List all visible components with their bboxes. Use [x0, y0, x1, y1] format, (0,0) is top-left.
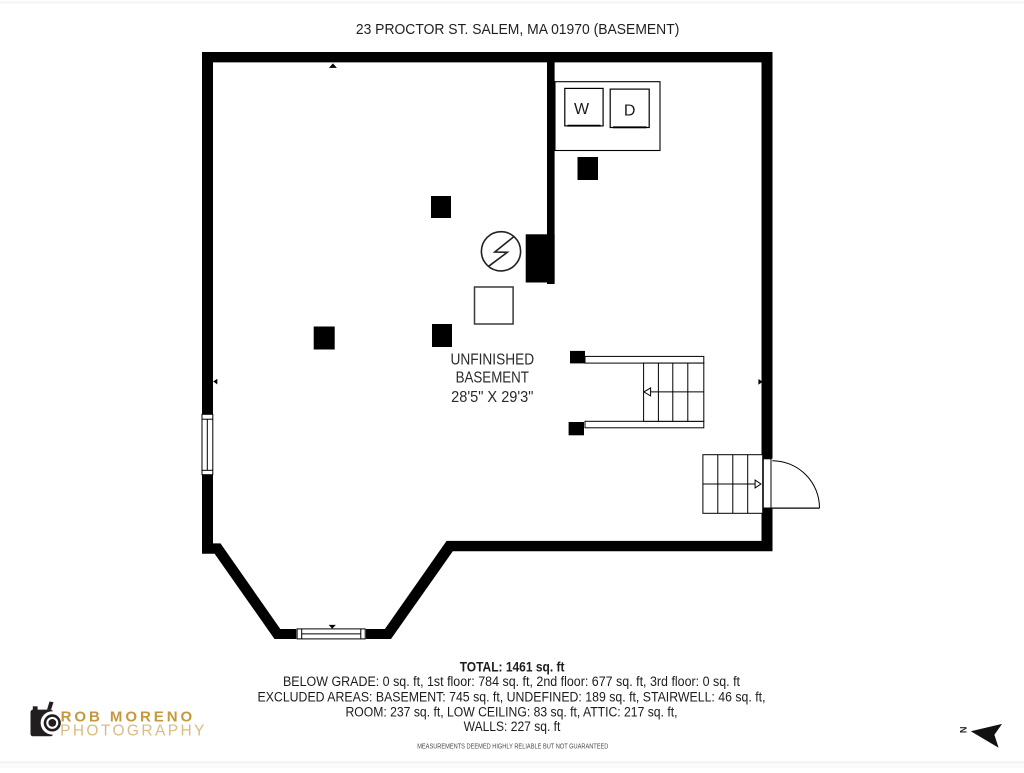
svg-text:WALLS: 227 sq. ft: WALLS: 227 sq. ft — [464, 719, 561, 734]
svg-text:PHOTOGRAPHY: PHOTOGRAPHY — [60, 723, 207, 740]
svg-text:UNFINISHED: UNFINISHED — [451, 351, 535, 368]
svg-text:N: N — [959, 726, 969, 733]
svg-text:TOTAL: 1461 sq. ft: TOTAL: 1461 sq. ft — [460, 659, 565, 674]
svg-text:BASEMENT: BASEMENT — [456, 370, 530, 387]
svg-text:23 PROCTOR ST. SALEM, MA 01970: 23 PROCTOR ST. SALEM, MA 01970 (BASEMENT… — [356, 22, 680, 38]
svg-text:W: W — [574, 101, 590, 118]
svg-text:EXCLUDED AREAS: BASEMENT: 745: EXCLUDED AREAS: BASEMENT: 745 sq. ft, UN… — [258, 690, 766, 705]
svg-text:BELOW GRADE: 0 sq. ft, 1st flo: BELOW GRADE: 0 sq. ft, 1st floor: 784 sq… — [283, 674, 740, 689]
svg-text:MEASUREMENTS DEEMED HIGHLY REL: MEASUREMENTS DEEMED HIGHLY RELIABLE BUT … — [417, 743, 608, 750]
svg-text:D: D — [624, 102, 636, 119]
svg-text:28'5" X 29'3": 28'5" X 29'3" — [451, 389, 533, 406]
svg-text:ROOM: 237 sq. ft, LOW CEILING:: ROOM: 237 sq. ft, LOW CEILING: 83 sq. ft… — [346, 705, 678, 720]
